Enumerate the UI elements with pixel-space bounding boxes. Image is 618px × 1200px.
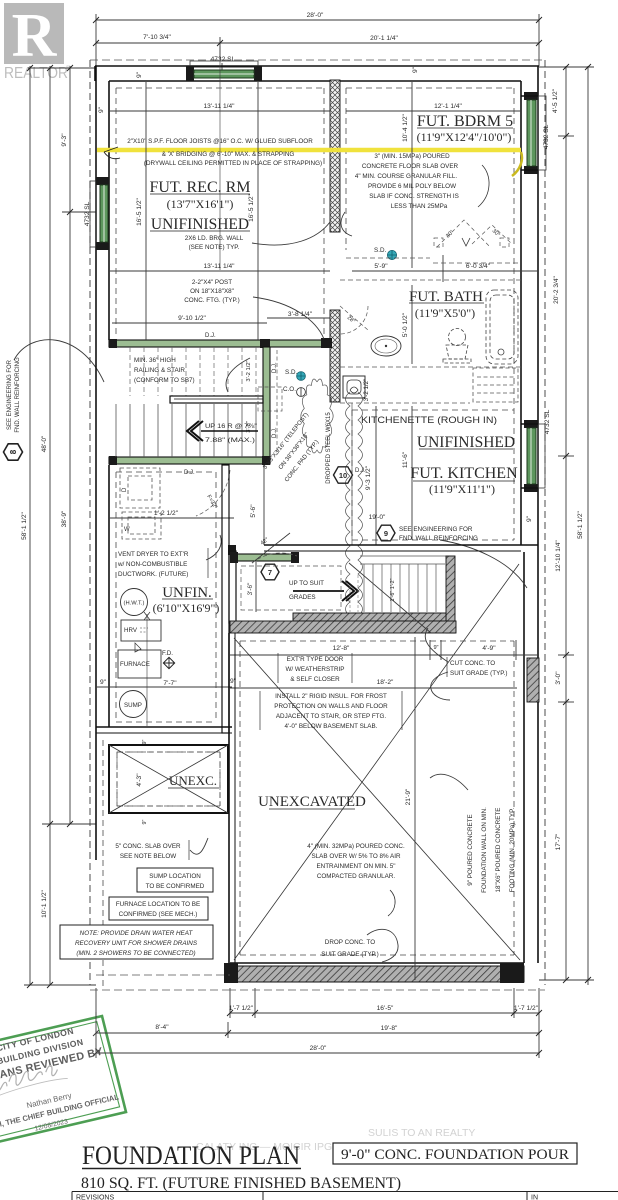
svg-text:4" MIN. COURSE GRANULAR FILL.: 4" MIN. COURSE GRANULAR FILL.: [355, 173, 458, 180]
svg-text:& SELF CLOSER: & SELF CLOSER: [290, 676, 340, 683]
svg-text:COMPACTED GRANULAR.: COMPACTED GRANULAR.: [317, 873, 396, 880]
svg-text:SLAB OVER W/ 5% TO 8% AIR: SLAB OVER W/ 5% TO 8% AIR: [311, 853, 400, 860]
svg-text:9": 9": [526, 515, 533, 522]
svg-text:10'-1 1/2": 10'-1 1/2": [41, 889, 48, 917]
svg-text:FUT. KITCHEN: FUT. KITCHEN: [410, 465, 518, 482]
svg-text:1'-6" 1'-2": 1'-6" 1'-2": [390, 578, 396, 601]
svg-text:NOTE: PROVIDE DRAIN WATER HEAT: NOTE: PROVIDE DRAIN WATER HEAT: [80, 930, 194, 937]
svg-text:W/ WEATHERSTRIP: W/ WEATHERSTRIP: [285, 666, 344, 673]
svg-text:5'-0 1/2": 5'-0 1/2": [402, 312, 409, 337]
svg-text:CONC. FTG. (TYP.): CONC. FTG. (TYP.): [184, 297, 240, 304]
svg-text:& 'X' BRIDGING @ 6'-10" MAX. &: & 'X' BRIDGING @ 6'-10" MAX. & STRAPPING: [162, 151, 295, 158]
svg-text:FOUNDATION WALL ON MIN.: FOUNDATION WALL ON MIN.: [481, 807, 488, 893]
svg-text:5'-6": 5'-6": [250, 504, 257, 518]
svg-text:21'-9": 21'-9": [405, 788, 412, 805]
svg-text:58'-1 1/2": 58'-1 1/2": [21, 511, 28, 539]
svg-text:FUT. REC. RM: FUT. REC. RM: [149, 179, 250, 196]
svg-text:9": 9": [433, 645, 438, 651]
svg-text:(SEE NOTE) TYP.: (SEE NOTE) TYP.: [189, 244, 240, 251]
svg-text:17'-7": 17'-7": [555, 833, 562, 850]
svg-text:SUMP: SUMP: [124, 702, 142, 709]
svg-text:4'-9": 4'-9": [482, 645, 496, 652]
svg-text:w/ NON-COMBUSTIBLE: w/ NON-COMBUSTIBLE: [117, 561, 187, 568]
svg-text:GRADES: GRADES: [289, 594, 316, 601]
svg-text:12'-1 1/4": 12'-1 1/4": [434, 103, 462, 110]
svg-text:(DRYWALL CEILING PERMITTED IN: (DRYWALL CEILING PERMITTED IN PLACE OF S…: [144, 160, 322, 167]
svg-text:1'-7 1/2": 1'-7 1/2": [229, 1005, 254, 1012]
svg-text:UNIFINISHED: UNIFINISHED: [151, 216, 249, 233]
svg-text:SEE NOTE BELOW: SEE NOTE BELOW: [120, 853, 176, 860]
svg-text:REVISIONS: REVISIONS: [76, 1195, 114, 1200]
svg-text:PROVIDE 6 MIL POLY BELOW: PROVIDE 6 MIL POLY BELOW: [368, 183, 456, 190]
svg-text:18'-2": 18'-2": [377, 679, 394, 686]
svg-text:ADJACENT TO STAIR, OR STEP FTG: ADJACENT TO STAIR, OR STEP FTG.: [276, 713, 387, 720]
svg-text:CUT CONC. TO: CUT CONC. TO: [450, 660, 495, 667]
svg-text:13'-11 1/4": 13'-11 1/4": [204, 103, 236, 110]
svg-text:9": 9": [136, 71, 143, 78]
svg-text:FOOTING (MIN. 20MPa) TYP.: FOOTING (MIN. 20MPa) TYP.: [509, 808, 516, 893]
svg-text:3'-2 1/2": 3'-2 1/2": [246, 360, 252, 381]
svg-text:(CONFORM TO SB7): (CONFORM TO SB7): [134, 377, 195, 384]
svg-text:D.J.: D.J.: [184, 470, 195, 476]
svg-text:DROPPED STEEL W6X15: DROPPED STEEL W6X15: [326, 412, 332, 484]
svg-text:9": 9": [142, 819, 148, 824]
svg-text:SEE ENGINEERING FOR: SEE ENGINEERING FOR: [7, 359, 13, 430]
svg-text:4'-5 1/2": 4'-5 1/2": [552, 88, 559, 113]
svg-text:11'-6": 11'-6": [402, 451, 409, 468]
svg-text:10'-4 1/2": 10'-4 1/2": [402, 113, 409, 141]
svg-text:MIN. 36" HIGH: MIN. 36" HIGH: [134, 357, 176, 364]
svg-text:FND. WALL REINFORCING: FND. WALL REINFORCING: [399, 535, 478, 542]
svg-text:3'-8 1/4": 3'-8 1/4": [288, 311, 313, 318]
svg-text:19'-8": 19'-8": [381, 1025, 398, 1032]
svg-text:LESS THAN 25MPa: LESS THAN 25MPa: [391, 203, 448, 210]
svg-text:3'-6": 3'-6": [246, 421, 252, 433]
svg-text:FURNACE LOCATION TO BE: FURNACE LOCATION TO BE: [116, 901, 200, 908]
svg-text:SUIT GRADE (TYP.): SUIT GRADE (TYP.): [450, 670, 508, 677]
svg-text:FUT. BDRM 5: FUT. BDRM 5: [417, 113, 513, 130]
svg-text:810 SQ. FT. (FUTURE FINISHED B: 810 SQ. FT. (FUTURE FINISHED BASEMENT): [81, 1175, 401, 1192]
svg-text:ENTRAINMENT ON MIN. 5": ENTRAINMENT ON MIN. 5": [316, 863, 395, 870]
svg-text:S.D.: S.D.: [285, 369, 297, 376]
svg-text:12'-10 1/4": 12'-10 1/4": [555, 540, 562, 572]
svg-text:18"X6" POURED CONCRETE: 18"X6" POURED CONCRETE: [495, 808, 502, 893]
svg-text:CONCRETE FLOOR SLAB OVER: CONCRETE FLOOR SLAB OVER: [362, 163, 459, 170]
svg-text:9: 9: [384, 529, 388, 538]
svg-text:EXT'R TYPE DOOR: EXT'R TYPE DOOR: [287, 656, 344, 663]
svg-text:SUMP LOCATION: SUMP LOCATION: [149, 873, 201, 880]
svg-text:UNIFINISHED: UNIFINISHED: [417, 434, 515, 451]
svg-text:UP TO SUIT: UP TO SUIT: [289, 580, 324, 587]
svg-text:8: 8: [9, 449, 18, 454]
svg-text:RAILING & STAIR: RAILING & STAIR: [134, 367, 185, 374]
svg-text:20'-2 3/4": 20'-2 3/4": [553, 275, 560, 303]
svg-text:10: 10: [339, 471, 347, 480]
svg-text:FOUNDATION PLAN: FOUNDATION PLAN: [82, 1141, 300, 1170]
svg-text:DUCTWORK. (FUTURE): DUCTWORK. (FUTURE): [118, 571, 188, 578]
svg-text:SULIS TO AN REALTY: SULIS TO AN REALTY: [368, 1127, 475, 1139]
svg-text:4732 SI: 4732 SI: [211, 56, 234, 63]
svg-text:16'-5 1/2": 16'-5 1/2": [136, 197, 143, 225]
svg-text:TO BE CONFIRMED: TO BE CONFIRMED: [146, 883, 205, 890]
svg-text:(11'9"X5'0"): (11'9"X5'0"): [415, 306, 475, 320]
svg-text:2-2"X4" POST: 2-2"X4" POST: [192, 279, 232, 286]
svg-text:9": 9": [230, 678, 237, 685]
svg-text:48'-0": 48'-0": [41, 435, 48, 452]
svg-text:9'-3": 9'-3": [61, 133, 68, 147]
svg-text:5'-9": 5'-9": [374, 263, 388, 270]
svg-text:S.D.: S.D.: [374, 247, 386, 254]
svg-text:5" CONC. SLAB OVER: 5" CONC. SLAB OVER: [115, 843, 181, 850]
svg-text:D: D: [122, 487, 128, 492]
svg-text:UNEXC.: UNEXC.: [169, 773, 217, 788]
svg-text:6'-0 3/4": 6'-0 3/4": [466, 263, 491, 270]
svg-text:9'-3 1/2": 9'-3 1/2": [365, 465, 372, 490]
svg-text:3'-2 1/2": 3'-2 1/2": [363, 379, 370, 402]
svg-text:7: 7: [268, 568, 272, 577]
svg-text:2X6 LD. BRG. WALL: 2X6 LD. BRG. WALL: [185, 235, 244, 242]
svg-text:4'-3": 4'-3": [136, 773, 143, 787]
svg-text:HRV: HRV: [124, 627, 138, 634]
svg-text:7'-10 3/4": 7'-10 3/4": [143, 34, 171, 41]
svg-text:4" (MIN. 32MPa) POURED CONC.: 4" (MIN. 32MPa) POURED CONC.: [307, 843, 405, 850]
svg-text:19'-0": 19'-0": [369, 514, 386, 521]
svg-text:(6'10"X16'9"): (6'10"X16'9"): [153, 601, 220, 615]
svg-text:9'-10 1/2": 9'-10 1/2": [178, 315, 206, 322]
svg-text:12'-8": 12'-8": [333, 645, 350, 652]
svg-text:(H.W.T.): (H.W.T.): [124, 601, 145, 607]
svg-text:3'-6": 3'-6": [247, 583, 254, 596]
svg-text:9": 9": [142, 739, 148, 744]
svg-text:28'-0": 28'-0": [307, 12, 324, 19]
svg-text:UNEXCAVATED: UNEXCAVATED: [258, 794, 366, 810]
svg-text:KITCHENETTE (ROUGH IN): KITCHENETTE (ROUGH IN): [361, 415, 497, 425]
svg-text:8'-4": 8'-4": [155, 1024, 169, 1031]
svg-text:C.O.: C.O.: [283, 386, 296, 393]
svg-text:1'-7 1/2": 1'-7 1/2": [514, 1005, 539, 1012]
svg-text:9'-0" CONC. FOUNDATION POUR: 9'-0" CONC. FOUNDATION POUR: [341, 1147, 569, 1163]
svg-text:W: W: [124, 527, 130, 533]
svg-text:20'-1 1/4": 20'-1 1/4": [370, 35, 398, 42]
svg-text:16'-5 1/2": 16'-5 1/2": [248, 193, 255, 221]
svg-text:FND. WALL REINFORCING: FND. WALL REINFORCING: [15, 357, 21, 433]
svg-text:7.88" (MAX.): 7.88" (MAX.): [205, 437, 255, 444]
svg-text:DROP CONC. TO: DROP CONC. TO: [325, 939, 375, 946]
svg-text:28'-0": 28'-0": [310, 1045, 327, 1052]
svg-text:9": 9": [100, 679, 107, 686]
svg-text:(MIN. 2 SHOWERS TO BE CONNECTE: (MIN. 2 SHOWERS TO BE CONNECTED): [76, 950, 195, 957]
svg-text:1'-2 1/2": 1'-2 1/2": [154, 510, 179, 517]
svg-text:CONFIRMED (SEE MECH.): CONFIRMED (SEE MECH.): [119, 911, 198, 918]
svg-text:(11'9"X12'4"/10'0"): (11'9"X12'4"/10'0"): [417, 130, 512, 144]
svg-text:7'-7": 7'-7": [163, 680, 177, 687]
svg-text:VENT DRYER TO EXT'R: VENT DRYER TO EXT'R: [118, 551, 189, 558]
svg-text:13'-11 1/4": 13'-11 1/4": [204, 263, 236, 270]
svg-text:9": 9": [98, 106, 105, 113]
svg-text:3" (MIN. 15MPa) POURED: 3" (MIN. 15MPa) POURED: [374, 153, 450, 160]
svg-text:16'-5": 16'-5": [377, 1005, 394, 1012]
svg-text:SLAB IF CONC. STRENGTH IS: SLAB IF CONC. STRENGTH IS: [369, 193, 459, 200]
svg-text:(11'9"X11'1"): (11'9"X11'1"): [429, 482, 495, 496]
svg-text:FURNACE: FURNACE: [120, 661, 150, 668]
svg-text:9" POURED CONCRETE: 9" POURED CONCRETE: [467, 814, 474, 886]
svg-text:ON 18"X18"X8": ON 18"X18"X8": [190, 288, 234, 295]
svg-text:D.J.: D.J.: [205, 333, 216, 339]
svg-text:F.D.: F.D.: [162, 650, 173, 657]
svg-text:(13'7"X16'1"): (13'7"X16'1"): [167, 197, 234, 211]
svg-text:58'-1 1/2": 58'-1 1/2": [577, 510, 584, 538]
svg-text:R: R: [12, 2, 58, 70]
svg-text:4'-0" BELOW BASEMENT SLAB.: 4'-0" BELOW BASEMENT SLAB.: [285, 723, 378, 730]
svg-text:38'-9": 38'-9": [61, 510, 68, 527]
svg-text:IN: IN: [531, 1195, 538, 1200]
svg-text:PROTECTION ON WALLS AND FLOOR: PROTECTION ON WALLS AND FLOOR: [274, 703, 388, 710]
svg-text:4732 SL: 4732 SL: [543, 124, 550, 149]
svg-text:3'-0": 3'-0": [555, 671, 562, 685]
svg-text:INSTALL 2" RIGID INSUL. FOR FR: INSTALL 2" RIGID INSUL. FOR FROST: [275, 693, 387, 700]
svg-text:RECOVERY UNIT FOR SHOWER DRAIN: RECOVERY UNIT FOR SHOWER DRAINS: [75, 940, 198, 947]
svg-text:9": 9": [412, 66, 419, 73]
svg-text:SUIT GRADE (TYP.): SUIT GRADE (TYP.): [321, 951, 379, 958]
svg-text:SEE ENGINEERING FOR: SEE ENGINEERING FOR: [399, 526, 473, 533]
